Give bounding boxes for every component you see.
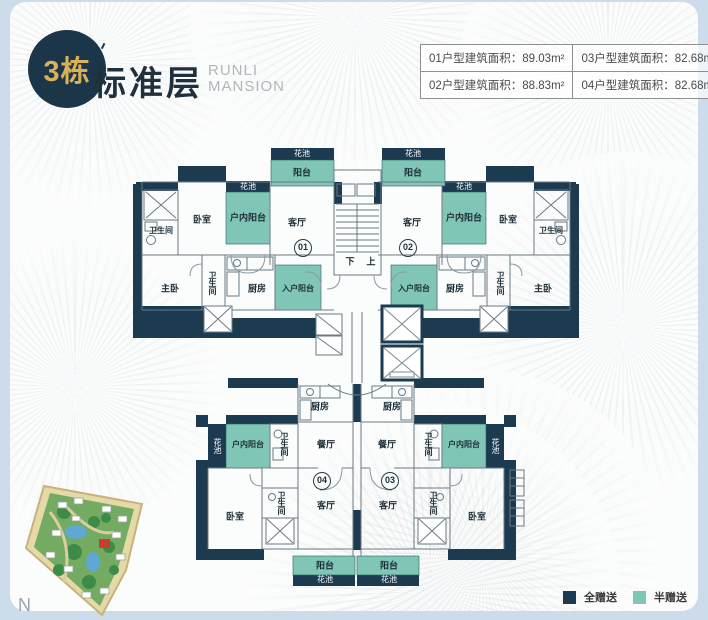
label-u04-balcony: 阳台 bbox=[316, 562, 334, 571]
area-cell-04: 04户型建筑面积：82.68m² bbox=[573, 72, 708, 99]
elevator-shafts bbox=[382, 306, 422, 380]
label-u02-balcony-top: 阳台 bbox=[404, 169, 422, 178]
label-u02-kitchen: 厨房 bbox=[446, 285, 464, 294]
label-u04-flower-side: 花池 bbox=[213, 438, 221, 454]
label-u01-kitchen: 厨房 bbox=[248, 285, 266, 294]
compass-north: N bbox=[18, 595, 31, 616]
unit-number-01: 01 bbox=[294, 239, 312, 257]
label-u03-bathroom-2: 卫生间 bbox=[429, 491, 437, 515]
label-u01-flower-top: 花池 bbox=[294, 150, 310, 158]
label-stair-down: 下 bbox=[345, 258, 354, 267]
unit-number-02: 02 bbox=[399, 239, 417, 257]
area-cell-02: 02户型建筑面积：88.83m² bbox=[421, 72, 573, 99]
map-pond bbox=[86, 552, 100, 572]
label-u02-bathroom-1: 卫生间 bbox=[539, 227, 563, 235]
label-u01-entry-balcony: 入户阳台 bbox=[282, 285, 314, 293]
label-u02-bedroom: 卧室 bbox=[499, 216, 517, 225]
label-u04-living: 客厅 bbox=[317, 502, 335, 511]
label-u01-master: 主卧 bbox=[161, 285, 179, 294]
label-u01-bathroom-2: 卫生间 bbox=[208, 271, 216, 295]
label-u03-flower-side: 花池 bbox=[491, 438, 499, 454]
unit-number-04: 04 bbox=[313, 472, 331, 490]
table-row: 02户型建筑面积：88.83m² 04户型建筑面积：82.68m² bbox=[421, 72, 708, 99]
label-u04-bathroom-2: 卫生间 bbox=[277, 491, 285, 515]
legend-full-gift-swatch bbox=[563, 591, 576, 604]
label-u02-indoor-balcony: 户内阳台 bbox=[446, 214, 482, 223]
label-u03-indoor-balcony: 户内阳台 bbox=[448, 441, 480, 449]
label-u04-flower-bottom: 花池 bbox=[317, 576, 333, 584]
label-u03-kitchen: 厨房 bbox=[383, 403, 401, 412]
label-u04-kitchen: 厨房 bbox=[311, 403, 329, 412]
label-u03-balcony: 阳台 bbox=[380, 562, 398, 571]
label-u02-bathroom-2: 卫生间 bbox=[496, 271, 504, 295]
label-u02-entry-balcony: 入户阳台 bbox=[398, 285, 430, 293]
label-u01-bedroom: 卧室 bbox=[193, 216, 211, 225]
label-u01-bathroom-1: 卫生间 bbox=[149, 227, 173, 235]
label-u02-flower-inner: 花池 bbox=[456, 183, 472, 191]
label-u03-dining: 餐厅 bbox=[378, 441, 396, 450]
table-row: 01户型建筑面积：89.03m² 03户型建筑面积：82.68m² bbox=[421, 45, 708, 72]
label-u01-indoor-balcony: 户内阳台 bbox=[230, 214, 266, 223]
site-plan-map bbox=[14, 452, 154, 620]
label-u02-living: 客厅 bbox=[403, 219, 421, 228]
label-u01-balcony-top: 阳台 bbox=[293, 169, 311, 178]
label-u03-bedroom: 卧室 bbox=[468, 513, 486, 522]
unit-area-table: 01户型建筑面积：89.03m² 03户型建筑面积：82.68m² 02户型建筑… bbox=[420, 44, 708, 99]
label-u01-living: 客厅 bbox=[288, 219, 306, 228]
label-u04-indoor-balcony: 户内阳台 bbox=[232, 441, 264, 449]
area-cell-01: 01户型建筑面积：89.03m² bbox=[421, 45, 573, 72]
label-u03-bathroom-1: 卫生间 bbox=[424, 432, 432, 456]
gift-legend: 全赠送 半赠送 bbox=[563, 589, 695, 605]
label-u04-bathroom-1: 卫生间 bbox=[280, 432, 288, 456]
map-pond bbox=[65, 525, 87, 539]
page-title: 标准层 bbox=[92, 56, 203, 105]
label-u03-living: 客厅 bbox=[379, 502, 397, 511]
map-highlighted-building bbox=[99, 539, 110, 548]
legend-half-gift-swatch bbox=[633, 591, 646, 604]
label-u02-flower-top: 花池 bbox=[405, 150, 421, 158]
subtitle-line1: RUNLI bbox=[208, 63, 285, 79]
subtitle-line2: MANSION bbox=[208, 79, 285, 95]
label-u02-master: 主卧 bbox=[534, 285, 552, 294]
legend-full-gift-label: 全赠送 bbox=[584, 589, 617, 605]
label-u04-bedroom: 卧室 bbox=[226, 513, 244, 522]
label-u01-flower-inner: 花池 bbox=[240, 183, 256, 191]
floorplan-poster: { "header": { "badge": "3栋", "title": "标… bbox=[0, 0, 708, 619]
label-u03-flower-bottom: 花池 bbox=[381, 576, 397, 584]
legend-half-gift-label: 半赠送 bbox=[654, 589, 687, 605]
page-subtitle: RUNLI MANSION bbox=[208, 63, 285, 95]
unit-number-03: 03 bbox=[381, 472, 399, 490]
label-u04-dining: 餐厅 bbox=[317, 441, 335, 450]
label-stair-up: 上 bbox=[366, 258, 375, 267]
building-badge-text: 3栋 bbox=[43, 48, 90, 90]
area-cell-03: 03户型建筑面积：82.68m² bbox=[573, 45, 708, 72]
